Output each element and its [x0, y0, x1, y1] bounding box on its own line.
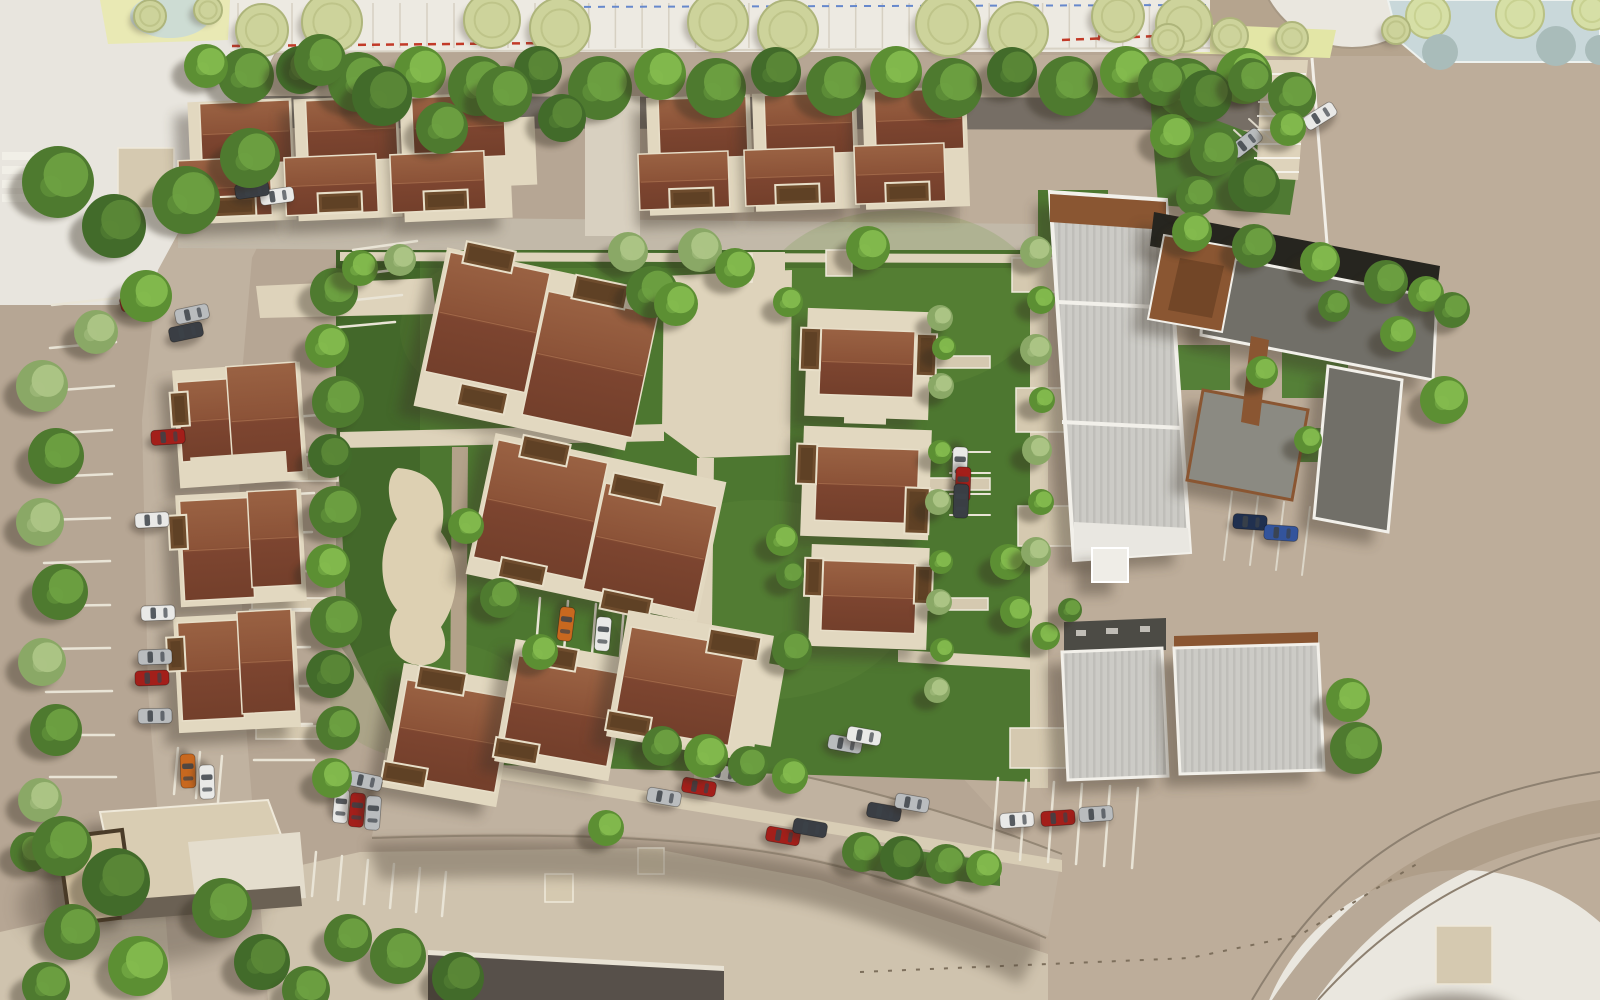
- car-windshield: [150, 607, 156, 619]
- tree-highlight-2: [939, 648, 946, 655]
- tree-highlight-2: [167, 194, 187, 214]
- playground-pad: [1536, 26, 1576, 66]
- tree-highlight-2: [1242, 76, 1255, 89]
- deck-slats: [174, 396, 186, 423]
- tree-highlight-2: [231, 71, 248, 88]
- tree-highlight-2: [1346, 743, 1362, 759]
- tree-highlight-2: [30, 796, 43, 809]
- deck-slats: [172, 519, 183, 545]
- playground-pad: [1422, 34, 1458, 70]
- tree-highlight-2: [692, 246, 705, 259]
- hedge-body: [688, 0, 748, 52]
- tree-highlight-2: [370, 91, 388, 109]
- tree-highlight-2: [406, 67, 422, 83]
- tree-highlight-2: [1185, 192, 1197, 204]
- tree-highlight-2: [822, 81, 840, 99]
- tree-highlight-2: [976, 865, 987, 876]
- car-windshield: [1273, 527, 1279, 539]
- tree-highlight-2: [1279, 92, 1293, 106]
- car-windshield: [367, 805, 379, 811]
- tree-highlight-2: [724, 264, 736, 276]
- structure: [1140, 626, 1150, 632]
- car-windshield: [1050, 812, 1056, 824]
- tree-highlight-2: [393, 257, 403, 267]
- tree-highlight-2: [1194, 91, 1210, 107]
- car-body: [1041, 809, 1076, 826]
- tree-highlight-2: [1042, 633, 1050, 641]
- tree-highlight-2: [1244, 181, 1260, 197]
- hedge-body: [1276, 22, 1308, 54]
- car-windshield: [954, 456, 966, 462]
- tree-highlight-2: [1378, 278, 1391, 291]
- car-rear-window: [367, 818, 377, 823]
- hedge: [1087, 0, 1144, 42]
- tree-highlight-2: [322, 452, 335, 465]
- car-windshield: [201, 774, 213, 780]
- tree-highlight-2: [387, 951, 404, 968]
- tree-highlight-2: [45, 451, 62, 468]
- tree-highlight-2: [1325, 303, 1335, 313]
- house: [794, 543, 934, 662]
- tree-highlight-2: [27, 518, 41, 532]
- car-rear-window: [1286, 528, 1291, 538]
- screenshot-root: [0, 0, 1600, 1000]
- tree-highlight-2: [529, 66, 543, 80]
- tree-highlight-2: [1242, 242, 1255, 255]
- tree-highlight-2: [1390, 331, 1401, 342]
- tree-highlight-2: [935, 500, 943, 508]
- tree-highlight-2: [780, 299, 789, 308]
- car-windshield: [182, 763, 194, 769]
- tree-highlight-2: [784, 572, 792, 580]
- tree-highlight-2: [1112, 67, 1128, 83]
- car-body: [138, 649, 173, 665]
- tree-highlight-2: [1304, 437, 1312, 445]
- car-rear-window: [956, 506, 966, 510]
- car-body: [135, 670, 170, 686]
- tree-highlight-2: [1255, 369, 1265, 379]
- building-south-a: [1062, 648, 1168, 780]
- deck-slats: [779, 188, 815, 201]
- car-rear-window: [202, 787, 212, 791]
- tree-highlight-2: [326, 617, 342, 633]
- car-windshield: [147, 710, 153, 721]
- tree-highlight-2: [247, 957, 264, 974]
- house: [161, 489, 307, 620]
- tree-highlight-2: [196, 62, 209, 75]
- tree-highlight-2: [317, 670, 331, 684]
- tree-highlight-2: [1030, 549, 1039, 558]
- tree-highlight-2: [33, 658, 47, 672]
- car-rear-window: [183, 776, 193, 780]
- car-body: [141, 605, 176, 621]
- tree-highlight-2: [1037, 398, 1045, 406]
- tree-highlight-2: [1435, 396, 1449, 410]
- tree-highlight-2: [1037, 297, 1045, 305]
- tree-highlight-2: [648, 69, 664, 85]
- tree-highlight-2: [444, 973, 460, 989]
- hedge: [459, 0, 520, 48]
- hedge-body: [916, 0, 980, 56]
- car-windshield: [597, 626, 609, 632]
- car-rear-window: [1063, 812, 1068, 822]
- car-windshield: [144, 672, 150, 684]
- car-body: [1000, 811, 1035, 828]
- tree-highlight-2: [935, 860, 947, 872]
- hedge-body: [134, 0, 166, 32]
- deck-slats: [673, 192, 709, 205]
- tree-highlight-2: [1203, 148, 1217, 162]
- crosswalk-bar: [2, 152, 34, 160]
- tree-highlight-2: [47, 587, 64, 604]
- tree-highlight-2: [935, 450, 942, 457]
- tree-highlight-2: [651, 742, 663, 754]
- tree-highlight-2: [30, 381, 46, 397]
- tree-highlight-2: [1311, 258, 1323, 270]
- tree-highlight-2: [321, 507, 337, 523]
- tree-highlight-2: [318, 562, 331, 575]
- house: [786, 425, 932, 552]
- tree-highlight-2: [935, 316, 943, 324]
- tree-highlight-2: [934, 600, 942, 608]
- aerial-site-plan-render: [0, 0, 1600, 1000]
- tree-highlight-2: [582, 82, 601, 101]
- tree-highlight-2: [1442, 307, 1453, 318]
- playground-mound: [1496, 0, 1544, 38]
- tree-highlight-2: [785, 646, 797, 658]
- building-south-b: [1174, 644, 1324, 774]
- car-body: [953, 484, 969, 519]
- tree-highlight-2: [934, 560, 941, 567]
- tree-highlight-2: [328, 724, 341, 737]
- tree-highlight-2: [308, 55, 324, 71]
- deck-slats: [804, 332, 817, 366]
- tree-highlight-2: [853, 848, 865, 860]
- tree-highlight-2: [136, 291, 152, 307]
- house-base: [844, 407, 887, 424]
- tree-highlight-2: [741, 762, 753, 774]
- hedge: [683, 0, 748, 52]
- tree-highlight-2: [1185, 228, 1197, 240]
- hedge-body: [464, 0, 520, 48]
- car-body: [1233, 513, 1268, 530]
- deck-slats: [808, 562, 819, 592]
- tree-highlight-2: [1338, 696, 1351, 709]
- tree-highlight-2: [600, 825, 611, 836]
- tree-highlight-2: [40, 176, 62, 198]
- tree-highlight-2: [493, 89, 510, 106]
- paved-pad: [1436, 926, 1492, 984]
- tree-highlight-2: [886, 67, 902, 83]
- hedge-body: [194, 0, 222, 24]
- car-rear-window: [1022, 814, 1027, 824]
- tree-highlight-2: [325, 288, 339, 302]
- tree-highlight-2: [350, 265, 361, 276]
- car-body: [138, 708, 172, 724]
- hedge-body: [1092, 0, 1144, 42]
- tree-highlight-2: [666, 300, 679, 313]
- tree-highlight-2: [930, 688, 938, 696]
- tree-highlight-2: [428, 123, 444, 139]
- tree-highlight-2: [35, 982, 49, 996]
- car-rear-window: [160, 652, 164, 662]
- parking-stripe: [46, 691, 112, 692]
- hedge: [911, 0, 980, 56]
- tree-highlight-2: [337, 934, 351, 948]
- car-windshield: [160, 431, 166, 443]
- car-rear-window: [160, 711, 164, 721]
- tree-highlight-2: [210, 903, 228, 921]
- car-rear-window: [157, 673, 161, 683]
- deck-slats: [322, 196, 358, 210]
- car-body: [364, 796, 381, 831]
- playground-mound: [1406, 0, 1450, 38]
- deck-slats: [889, 186, 925, 199]
- tree-highlight-2: [894, 854, 907, 867]
- car-body: [1079, 805, 1114, 822]
- tree-highlight-2: [61, 927, 78, 944]
- car-rear-window: [1255, 517, 1260, 527]
- tree-highlight-2: [122, 961, 140, 979]
- car-windshield: [144, 514, 150, 526]
- tree-highlight-2: [858, 244, 871, 257]
- tree-highlight-2: [100, 220, 119, 239]
- tree-highlight-2: [1033, 447, 1042, 456]
- hedge-body: [1382, 16, 1410, 44]
- structure: [1076, 630, 1086, 636]
- hedge-body: [1152, 24, 1184, 56]
- tree-highlight-2: [325, 774, 337, 786]
- paved-pad: [545, 874, 573, 902]
- tree-highlight-2: [1160, 132, 1173, 145]
- tree-highlight-2: [315, 342, 328, 355]
- tree-highlight-2: [773, 537, 783, 547]
- tree-highlight-2: [762, 68, 777, 83]
- car-windshield: [1088, 808, 1094, 820]
- deck-slats: [428, 194, 464, 208]
- tree-highlight-2: [1029, 249, 1039, 259]
- tree-highlight-2: [1280, 125, 1291, 136]
- car-rear-window: [1101, 808, 1106, 818]
- car-windshield: [1242, 516, 1248, 528]
- car-body: [151, 428, 186, 445]
- tree-highlight-2: [621, 248, 633, 260]
- tree-highlight-2: [1416, 291, 1427, 302]
- deck-slats: [800, 448, 813, 480]
- car-body: [1264, 524, 1299, 541]
- tree-highlight-2: [780, 773, 791, 784]
- car-rear-window: [157, 514, 162, 524]
- tree-highlight-2: [1149, 78, 1163, 92]
- tree-highlight-2: [1011, 609, 1021, 619]
- tree-highlight-2: [696, 752, 709, 765]
- car-windshield: [955, 493, 967, 499]
- tree-highlight-2: [84, 328, 97, 341]
- car-body: [135, 512, 170, 529]
- tree-highlight-2: [489, 594, 501, 606]
- building-dark-wing: [1314, 366, 1402, 532]
- car-body: [594, 616, 612, 651]
- car-rear-window: [163, 608, 167, 618]
- tree-highlight-2: [326, 397, 342, 413]
- tree-highlight-2: [934, 384, 942, 392]
- house: [159, 609, 302, 746]
- tree-highlight-2: [236, 153, 254, 171]
- car-windshield: [1009, 814, 1015, 826]
- car-body: [199, 765, 215, 800]
- tree-highlight-2: [1056, 81, 1074, 99]
- tree-highlight-2: [99, 876, 119, 896]
- tree-highlight-2: [1027, 347, 1037, 357]
- tree-highlight-2: [460, 523, 471, 534]
- tree-highlight-2: [941, 346, 948, 353]
- tree-highlight-2: [46, 841, 64, 859]
- tree-highlight-2: [549, 114, 563, 128]
- roof-cube: [1092, 548, 1128, 582]
- tree-highlight-2: [704, 83, 722, 101]
- tree-highlight-2: [1000, 68, 1015, 83]
- tree-highlight-2: [1034, 500, 1042, 508]
- car-rear-window: [173, 431, 178, 441]
- structure: [1106, 628, 1118, 634]
- tree-highlight-2: [295, 986, 309, 1000]
- tree-highlight-2: [1063, 608, 1070, 615]
- tree-highlight-2: [532, 649, 543, 660]
- car-windshield: [147, 651, 153, 663]
- tree-highlight-2: [42, 725, 58, 741]
- tree-highlight-2: [936, 83, 954, 101]
